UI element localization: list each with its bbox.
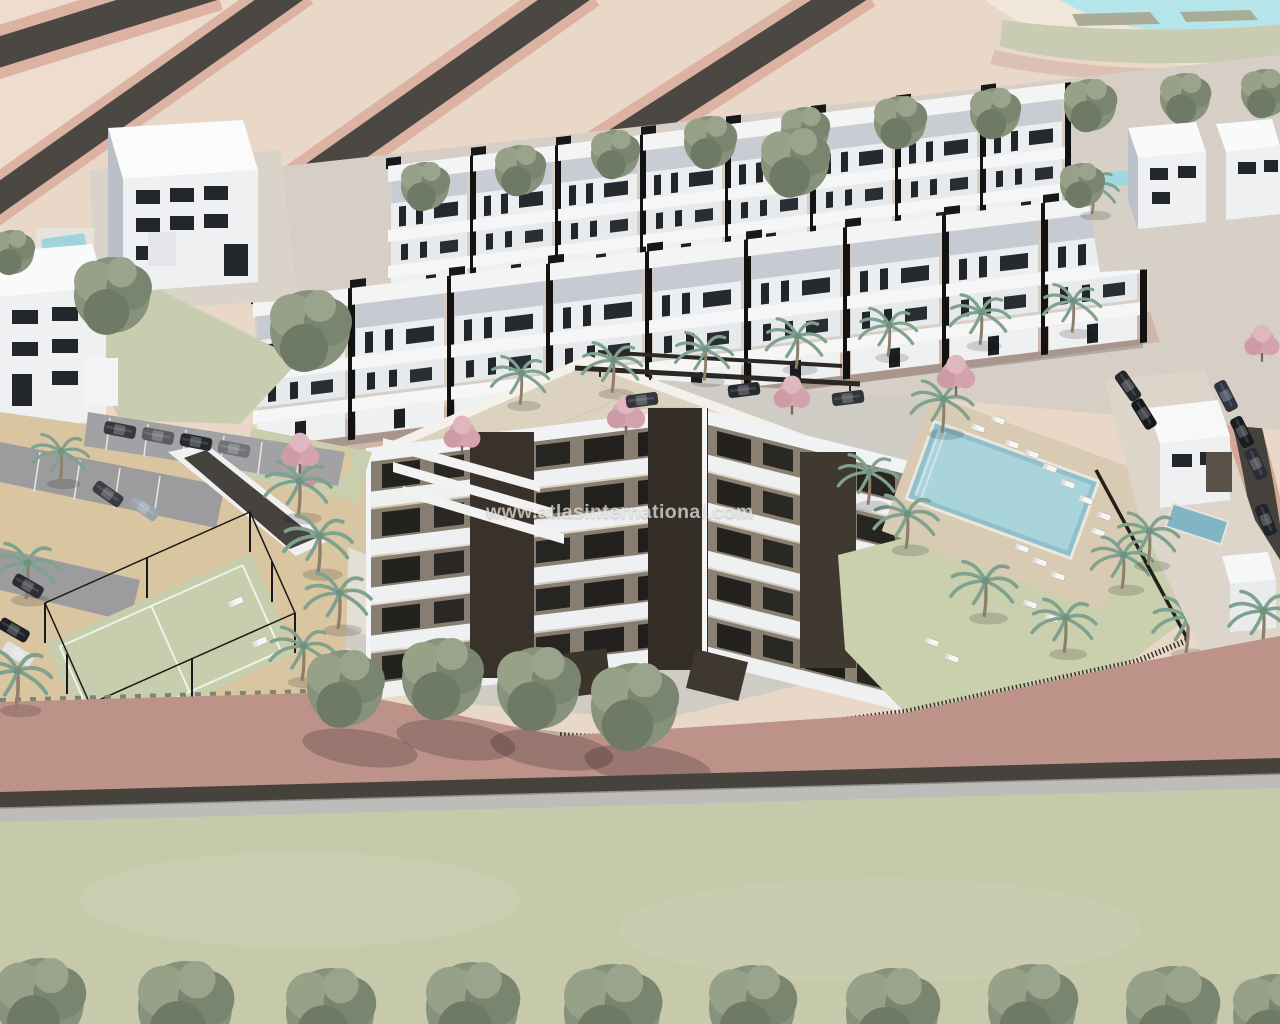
green-patch-dark bbox=[1072, 12, 1160, 26]
render-canvas: www.atlasinternational.com bbox=[0, 0, 1280, 1024]
green-patch-dark bbox=[1180, 10, 1258, 22]
annex-box bbox=[84, 358, 118, 406]
stone-wall bbox=[1206, 452, 1232, 492]
annex-box bbox=[148, 232, 176, 266]
dark-core bbox=[648, 408, 708, 670]
boundary-wall-field bbox=[0, 758, 1280, 1024]
